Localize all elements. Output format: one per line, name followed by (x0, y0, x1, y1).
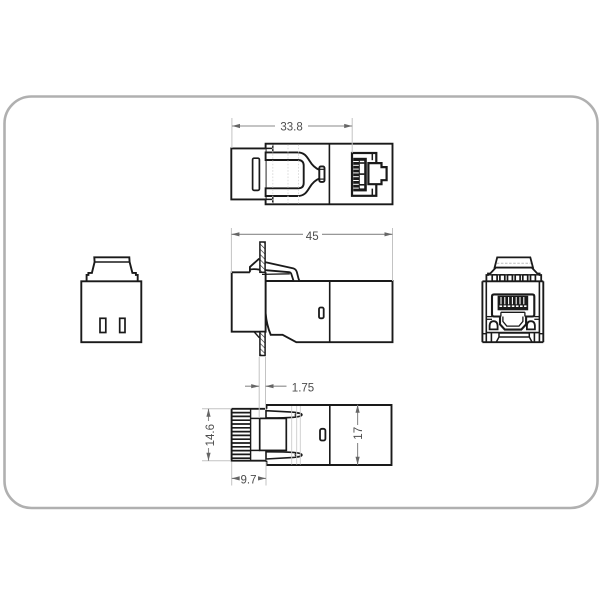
svg-text:1.75: 1.75 (292, 382, 314, 394)
svg-text:9.7: 9.7 (241, 474, 257, 486)
svg-text:14.6: 14.6 (205, 424, 217, 446)
svg-text:17: 17 (353, 427, 365, 440)
svg-text:45: 45 (306, 231, 319, 243)
svg-text:33.8: 33.8 (280, 122, 302, 134)
